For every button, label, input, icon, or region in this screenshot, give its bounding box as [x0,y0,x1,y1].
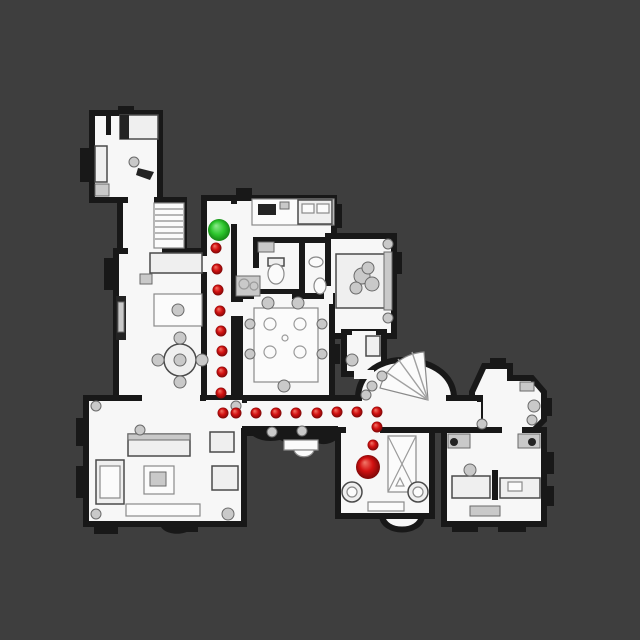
path-waypoint-dot [291,408,302,419]
path-waypoint-dot [372,407,383,418]
floor-plan-map [0,0,640,640]
path-waypoint-dot [215,306,226,317]
floor-plan-viewport [0,0,640,640]
path-waypoint-dot [211,243,222,254]
path-waypoint-dot [251,408,262,419]
bay-window [382,516,422,530]
path-waypoint-dot [217,346,228,357]
path-waypoint-dot [368,440,379,451]
path-waypoint-dot [332,407,343,418]
path-waypoint-dot [216,326,227,337]
path-waypoint-dot [352,407,363,418]
path-waypoint-dot [212,264,223,275]
path-waypoint-dot [217,367,228,378]
path-waypoint-dot [271,408,282,419]
dining-furniture [245,297,327,392]
path-waypoint-dot [213,285,224,296]
path-waypoint-dot [231,408,242,419]
desk-left [452,476,490,498]
staircase [154,203,184,248]
path-waypoint-dot [216,388,227,399]
dining-table [254,308,318,382]
start-marker [208,219,230,241]
path-waypoint-dot [218,408,229,419]
goal-marker [356,455,380,479]
path-waypoint-dot [372,422,383,433]
path-waypoint-dot [312,408,323,419]
